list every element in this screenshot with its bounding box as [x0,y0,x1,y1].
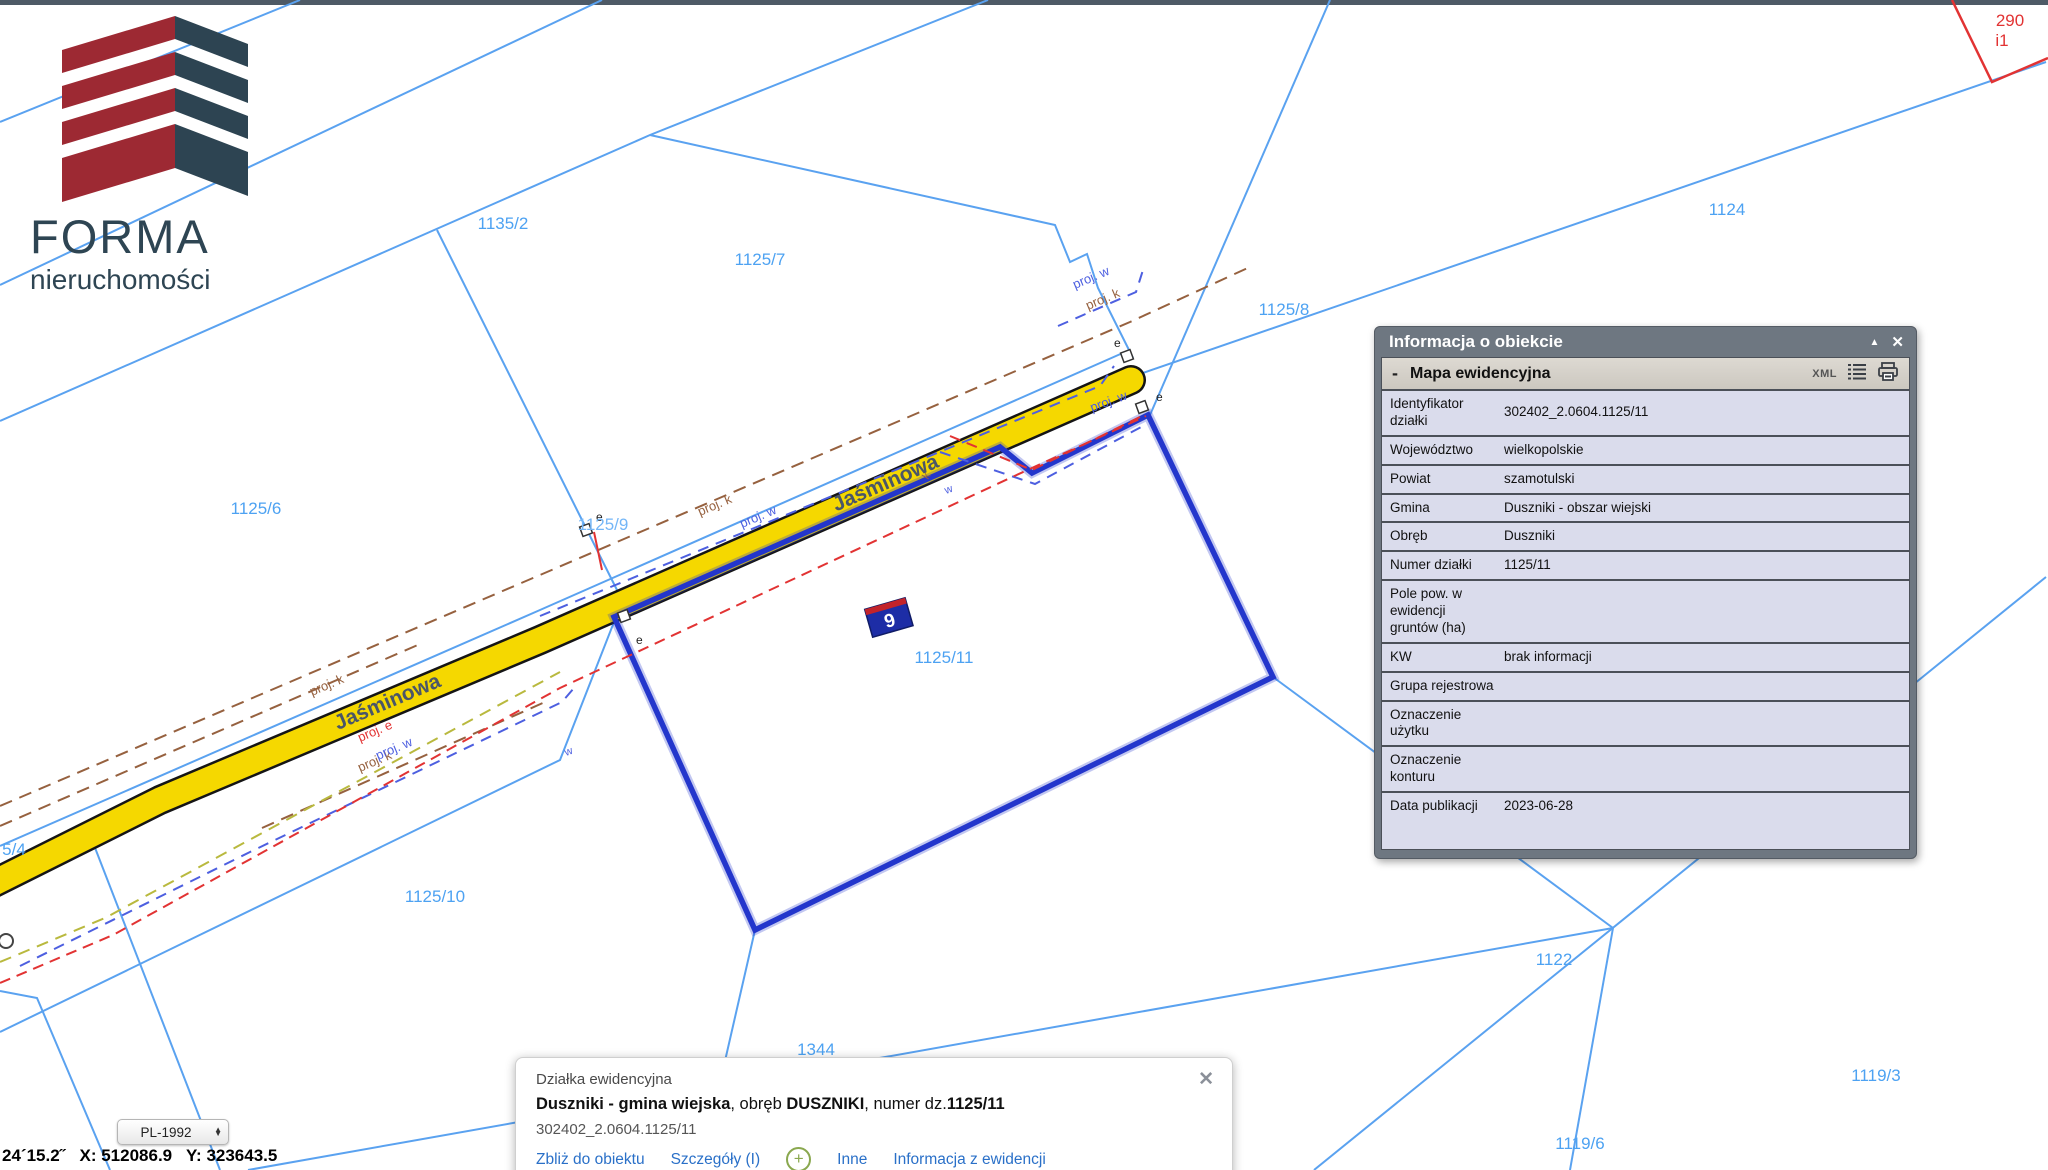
table-row: Pole pow. w ewidencji gruntów (ha) [1382,581,1909,644]
logo-subtitle: nieruchomości [30,266,270,294]
row-label: Oznaczenie konturu [1382,747,1498,791]
house-number-marker: 9 [865,598,913,637]
parcel-label-1119-3: 1119/3 [1851,1066,1900,1085]
proj-w-label: proj. w [373,734,415,763]
parcel-popup: ✕ Działka ewidencyjna Duszniki - gmina w… [515,1057,1233,1170]
e-label: e [636,633,643,647]
row-label: Obręb [1382,523,1498,550]
survey-point-circle [0,934,13,948]
parcel-label-1122: 1122 [1536,950,1573,969]
panel-title: Informacja o obiekcie [1381,332,1864,352]
object-info-panel: Informacja o obiekcie ▲ ✕ - Mapa ewidenc… [1374,326,1917,859]
row-label: KW [1382,644,1498,671]
tiny-w-mark: w [942,483,955,497]
table-row: Numer działki1125/11 [1382,552,1909,581]
row-label: Identyfikator działki [1382,391,1498,435]
zoom-to-object-link[interactable]: Zbliż do obiektu [536,1151,645,1169]
row-value: szamotulski [1498,466,1909,493]
red-tick [594,532,602,570]
forma-logo: FORMA nieruchomości [30,8,270,294]
panel-close-button[interactable]: ✕ [1885,333,1910,351]
select-arrows-icon: ▲▼ [214,1128,228,1137]
row-label: Gmina [1382,495,1498,522]
popup-parcel-id: 302402_2.0604.1125/11 [536,1121,1212,1138]
e-label: e [1114,336,1121,350]
crs-selected-value: PL-1992 [118,1125,214,1140]
row-label: Pole pow. w ewidencji gruntów (ha) [1382,581,1498,642]
parcel-label-1135-2: 1135/2 [478,214,529,233]
popup-main-line: Duszniki - gmina wiejska, obręb DUSZNIKI… [536,1095,1212,1114]
popup-title: Działka ewidencyjna [536,1071,1212,1088]
table-row: ObrębDuszniki [1382,523,1909,552]
table-row: Identyfikator działki302402_2.0604.1125/… [1382,391,1909,437]
map-viewer-screen: e e e e proj. k proj. k proj. k proj. k … [0,0,2048,1170]
parcel-label-1125-7: 1125/7 [735,250,786,269]
table-row: KWbrak informacji [1382,644,1909,673]
crs-selector[interactable]: PL-1992 ▲▼ [117,1119,229,1145]
parcel-label-1119-6: 1119/6 [1555,1134,1604,1153]
proj-k-label: proj. k [307,671,346,699]
panel-body: - Mapa ewidencyjna XML [1381,357,1910,850]
proj-e-lines [0,414,1146,983]
table-row: Oznaczenie konturu [1382,747,1909,793]
row-value: wielkopolskie [1498,437,1909,464]
row-label: Numer działki [1382,552,1498,579]
row-value [1498,718,1909,728]
table-row: Oznaczenie użytku [1382,702,1909,748]
row-label: Grupa rejestrowa [1382,673,1498,700]
parcel-label-1125-8: 1125/8 [1259,300,1310,319]
proj-k-lines [0,266,1252,828]
row-value [1498,606,1909,616]
proj-k-label: proj. k [695,491,734,519]
row-value [1498,764,1909,774]
table-row: Powiatszamotulski [1382,466,1909,495]
row-value: 1125/11 [1498,552,1909,579]
popup-text: , obręb [730,1095,786,1113]
parcel-label-1124: 1124 [1709,200,1746,219]
parcel-label-1125-11: 1125/11 [915,648,974,667]
popup-parcel-number: 1125/11 [947,1095,1005,1113]
row-label: Oznaczenie użytku [1382,702,1498,746]
section-title: Mapa ewidencyjna [1410,365,1812,383]
coordinate-readout: 24´15.2˝ X: 512086.9 Y: 323643.5 [2,1146,277,1166]
olive-lines [0,672,560,962]
row-value: brak informacji [1498,644,1909,671]
parcel-label-5-4: 5/4 [2,840,26,859]
row-value: Duszniki [1498,523,1909,550]
road-jasminowa [0,380,1131,890]
popup-obreb: DUSZNIKI [786,1095,864,1113]
top-window-strip [0,0,2048,5]
popup-gmina: Duszniki - gmina wiejska [536,1095,730,1113]
section-header: - Mapa ewidencyjna XML [1382,358,1909,391]
xml-export-button[interactable]: XML [1812,368,1837,380]
panel-titlebar: Informacja o obiekcie ▲ ✕ [1381,327,1910,357]
parcel-label-1125-10: 1125/10 [405,887,465,906]
row-label: Powiat [1382,466,1498,493]
print-icon[interactable] [1877,362,1899,386]
details-link[interactable]: Szczegóły (I) [671,1151,761,1169]
add-plus-icon[interactable]: + [786,1147,811,1170]
popup-close-icon[interactable]: ✕ [1198,1068,1214,1091]
row-value [1498,681,1909,691]
logo-wordmark: FORMA [30,213,270,260]
row-value: Duszniki - obszar wiejski [1498,495,1909,522]
row-value: 2023-06-28 [1498,793,1909,820]
other-link[interactable]: Inne [837,1151,867,1169]
section-collapse-button[interactable]: - [1382,363,1410,384]
parcel-label-290: 290 [1996,11,2024,30]
table-row: GminaDuszniki - obszar wiejski [1382,495,1909,524]
forma-building-icon [30,8,260,206]
row-value: 302402_2.0604.1125/11 [1498,399,1909,426]
section-icons: XML [1812,362,1909,386]
tiny-w-mark: w [562,745,575,759]
parcel-label-1125-9: 1125/9 [578,515,629,534]
proj-k-label: proj. k [1083,285,1122,313]
selected-parcel-outline [614,415,1273,930]
popup-links: Zbliż do obiektu Szczegóły (I) + Inne In… [536,1147,1212,1170]
parcel-label-1125-6: 1125/6 [231,499,282,518]
table-row: Grupa rejestrowa [1382,673,1909,702]
panel-collapse-button[interactable]: ▲ [1864,337,1886,348]
list-view-icon[interactable] [1847,362,1867,385]
table-row: Województwowielkopolskie [1382,437,1909,466]
table-row: Data publikacji2023-06-28 [1382,793,1909,820]
e-label: e [1156,390,1163,404]
row-label: Data publikacji [1382,793,1498,820]
row-label: Województwo [1382,437,1498,464]
registry-info-link[interactable]: Informacja z ewidencji [893,1151,1045,1169]
popup-text: , numer dz. [864,1095,947,1113]
parcel-label-i1: i1 [1995,31,2008,50]
